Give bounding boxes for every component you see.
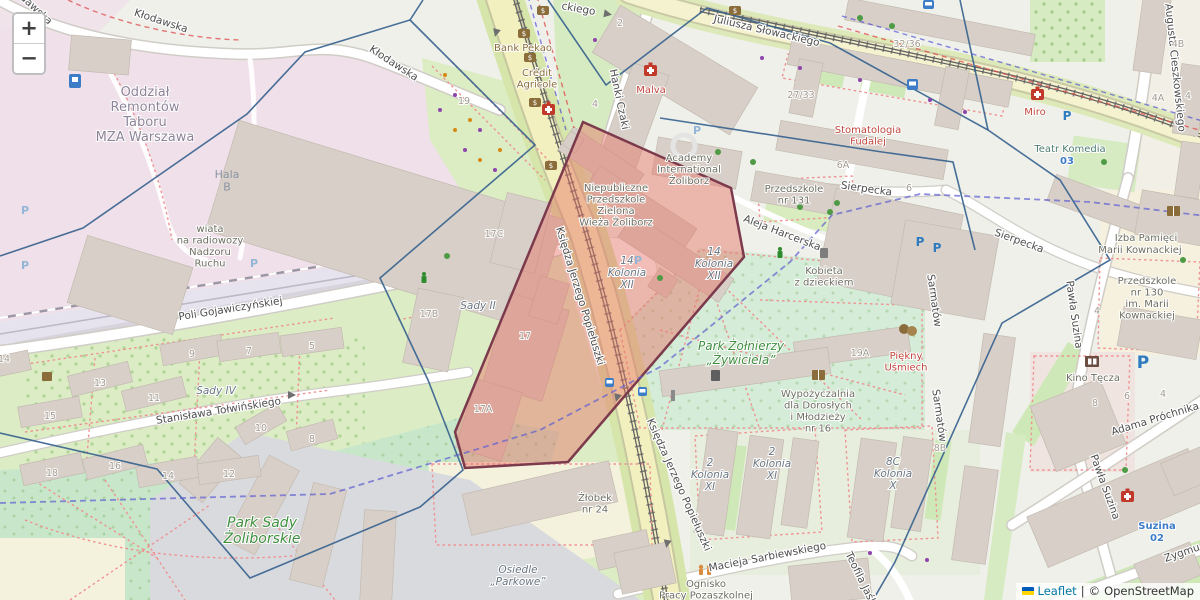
svg-text:$: $ (541, 7, 545, 15)
picnic-icon (42, 372, 52, 381)
label-przedszkole-130: Przedszkolenr 130im. MariiKownackiej (1118, 276, 1177, 322)
label-park-zolnierzy: Park Żołnierzy„Żywiciela” (698, 338, 785, 367)
housenumber: 15 (44, 411, 56, 422)
svg-text:$: $ (522, 30, 526, 38)
housenumber: 7 (246, 346, 252, 357)
housenumber: 4 (1185, 91, 1191, 102)
label-park-sady: Park SadyŻoliborskie (222, 515, 300, 547)
label-19a: 19A (851, 348, 870, 359)
attribution-bar: Leaflet | © OpenStreetMap (1016, 583, 1200, 600)
label-sady-iv: Sady IV (196, 385, 236, 397)
label-stop-02: 02 (1150, 533, 1164, 544)
svg-text:$: $ (528, 54, 532, 62)
building (891, 220, 999, 320)
zoom-control: + − (12, 12, 46, 75)
housenumber: 4B (1172, 39, 1185, 50)
label-piekny-usmiech: PięknyUśmiech (884, 351, 927, 374)
housenumber: 10 (255, 423, 267, 434)
label-sady-ii: Sady II (460, 300, 496, 312)
housenumber: 8 (1092, 398, 1098, 409)
housenumber: 6 (1124, 391, 1130, 402)
parking-icon: P (1063, 109, 1072, 123)
housenumber: 17 (519, 331, 531, 342)
housenumber: 6 (906, 183, 912, 194)
housenumber: 14 (162, 471, 174, 482)
label-teatr-komedia: Teatr Komedia (1033, 144, 1105, 155)
housenumber: 6A (837, 160, 850, 171)
label-suzina-stop: Suzina (1138, 521, 1175, 532)
housenumber: 16 (109, 461, 121, 472)
zoom-in-button[interactable]: + (14, 14, 44, 44)
housenumber: 19 (458, 96, 470, 107)
map-canvas[interactable]: $$$ $$$ (0, 0, 1200, 600)
label-malva: Malva (636, 85, 666, 96)
svg-text:$: $ (733, 7, 737, 15)
cinema-icon (1085, 356, 1099, 367)
housenumber: 8 (309, 434, 315, 445)
map-screen: $$$ $$$ (0, 0, 1200, 600)
parking-icon: P (916, 235, 925, 249)
label-bank-pekao: Bank Pekao (494, 43, 552, 54)
label-miro: Miro (1024, 107, 1045, 118)
label-izba-pamieci: Marii Kownackiej (1098, 245, 1181, 256)
housenumber: 17C (485, 229, 504, 240)
housenumber: 27/33 (787, 90, 814, 101)
housenumber: 11 (148, 393, 160, 404)
housenumber: 14 (0, 354, 10, 365)
parking-icon: P (693, 124, 701, 137)
svg-text:$: $ (549, 162, 553, 170)
housenumber: 13 (94, 378, 106, 389)
housenumber: 4 (1094, 306, 1100, 317)
housenumber: 12 (223, 469, 235, 480)
housenumber: 17B (420, 309, 439, 320)
label-kino-tecza: Kino Tęcza (1066, 373, 1120, 384)
parking-icon: P (634, 254, 642, 267)
label-stop-03: 03 (1060, 156, 1074, 167)
charging-station-icon (69, 74, 81, 88)
attribution-divider: | (1081, 584, 1085, 598)
housenumber: 17A (474, 404, 493, 415)
housenumber: 32/36 (893, 39, 920, 50)
parking-icon: P (933, 241, 942, 255)
parking-icon: P (21, 204, 29, 217)
housenumber: 5 (309, 341, 315, 352)
housenumber: 4 (592, 99, 598, 110)
housenumber: 4A (1152, 93, 1165, 104)
label-izba-pamieci: Izba Pamięci (1115, 233, 1178, 244)
ukraine-flag-icon (1022, 587, 1034, 595)
housenumber: 8B (934, 443, 947, 454)
housenumber: 4 (1160, 389, 1166, 400)
osm-link[interactable]: OpenStreetMap (1104, 584, 1194, 598)
parking-icon: P (1137, 353, 1149, 373)
leaflet-link[interactable]: Leaflet (1038, 584, 1077, 598)
building (360, 510, 397, 600)
label-credit-agricole: CréditAgricole (517, 67, 558, 91)
zoom-out-button[interactable]: − (14, 44, 44, 73)
parking-icon: P (250, 257, 258, 270)
building (69, 35, 132, 75)
label-zlobek: Żłobeknr 24 (578, 491, 612, 516)
svg-text:$: $ (533, 99, 537, 107)
housenumber: 18 (46, 468, 58, 479)
copyright-symbol: © (1089, 584, 1101, 598)
parking-icon: P (21, 259, 29, 272)
housenumber: 2 (617, 18, 623, 29)
housenumber: 9 (189, 349, 195, 360)
